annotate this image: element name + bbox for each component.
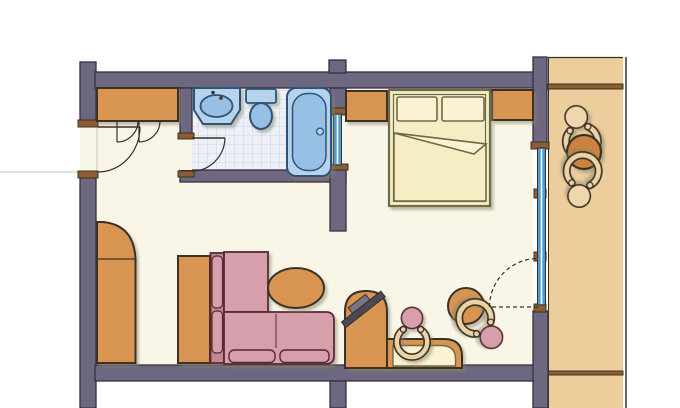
toilet-bowl [250, 103, 272, 129]
entry-jamb-bottom [78, 171, 98, 178]
nightstand-left [346, 91, 387, 121]
toilet-tank [246, 89, 276, 103]
wall-bottom [95, 365, 535, 381]
wall-bathroom-right-lower [330, 169, 346, 231]
sofa-back-cushion-1 [212, 256, 223, 308]
sideboard-strip [178, 256, 210, 363]
pillow-left [397, 97, 437, 121]
wall-right-upper [533, 57, 547, 147]
sofa-back-cushion-2 [212, 311, 223, 353]
wall-top [95, 72, 535, 88]
wall-right-lower [533, 311, 548, 408]
sofa-front-cushion-1 [229, 350, 275, 363]
wall-bottom-mid-stub [330, 381, 346, 408]
sofa-seat-upper [224, 252, 268, 312]
wall-bathroom-left [180, 88, 192, 134]
nightstand-right [492, 90, 533, 120]
balcony-divider-top [548, 84, 623, 89]
bathtub-drain [317, 128, 324, 135]
bathroom-door-jamb [178, 133, 194, 139]
bathroom-door-opening [180, 139, 192, 170]
pillow-right [442, 97, 484, 121]
oval-coffee-table [268, 268, 324, 308]
washbasin-tap-dot [211, 91, 215, 95]
entry-wardrobe [97, 88, 178, 121]
wall-top-pilaster [329, 60, 346, 73]
washbasin-bowl [201, 95, 233, 117]
floor-plan-canvas [0, 0, 680, 408]
balcony-divider-bottom [548, 371, 623, 375]
tall-corner-cabinet [97, 222, 136, 363]
floor-plan-drawing [0, 0, 680, 408]
wall-left-lower [80, 177, 96, 408]
sofa-front-cushion-2 [280, 350, 329, 363]
wall-left-upper [80, 62, 96, 121]
tall-cabinet-body [97, 222, 136, 363]
bathroom-wall-cap [178, 171, 194, 177]
double-bed [389, 90, 490, 206]
washbasin-drain-dot [219, 96, 223, 100]
entry-door-opening [80, 127, 96, 171]
entry-jamb-top [78, 120, 98, 127]
